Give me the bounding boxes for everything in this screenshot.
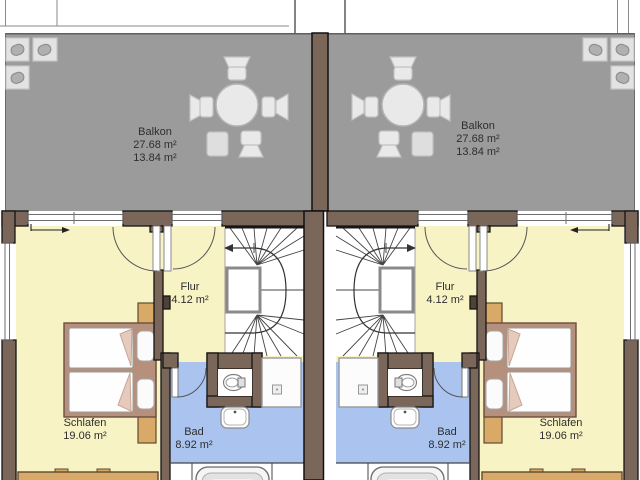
unit-left [2,33,313,480]
room-name: Balkon [105,126,205,139]
room-name: Flur [158,281,222,294]
room-label-balkon-right: Balkon 27.68 m² 13.84 m² [428,120,528,159]
room-label-bad-left: Bad 8.92 m² [144,426,244,452]
room-area: 4.12 m² [158,294,222,307]
room-name: Bad [144,426,244,439]
roof-lines [0,0,629,33]
room-label-schlafen-left: Schlafen 19.06 m² [35,417,135,443]
room-label-bad-right: Bad 8.92 m² [397,426,497,452]
room-label-flur-left: Flur 4.12 m² [158,281,222,307]
room-area: 8.92 m² [397,439,497,452]
room-label-balkon-left: Balkon 27.68 m² 13.84 m² [105,126,205,165]
room-area-half: 13.84 m² [428,146,528,159]
room-name: Schlafen [511,417,611,430]
room-name: Bad [397,426,497,439]
room-label-flur-right: Flur 4.12 m² [413,281,477,307]
room-name: Balkon [428,120,528,133]
room-name: Flur [413,281,477,294]
room-label-schlafen-right: Schlafen 19.06 m² [511,417,611,443]
floor-plan: Balkon 27.68 m² 13.84 m² Balkon 27.68 m²… [0,0,640,480]
room-area: 27.68 m² [428,133,528,146]
room-area: 19.06 m² [511,430,611,443]
room-area: 19.06 m² [35,430,135,443]
room-area: 4.12 m² [413,294,477,307]
room-area: 27.68 m² [105,139,205,152]
room-area: 8.92 m² [144,439,244,452]
unit-right [327,33,638,480]
floor-plan-drawing [0,0,640,480]
room-name: Schlafen [35,417,135,430]
room-area-half: 13.84 m² [105,152,205,165]
